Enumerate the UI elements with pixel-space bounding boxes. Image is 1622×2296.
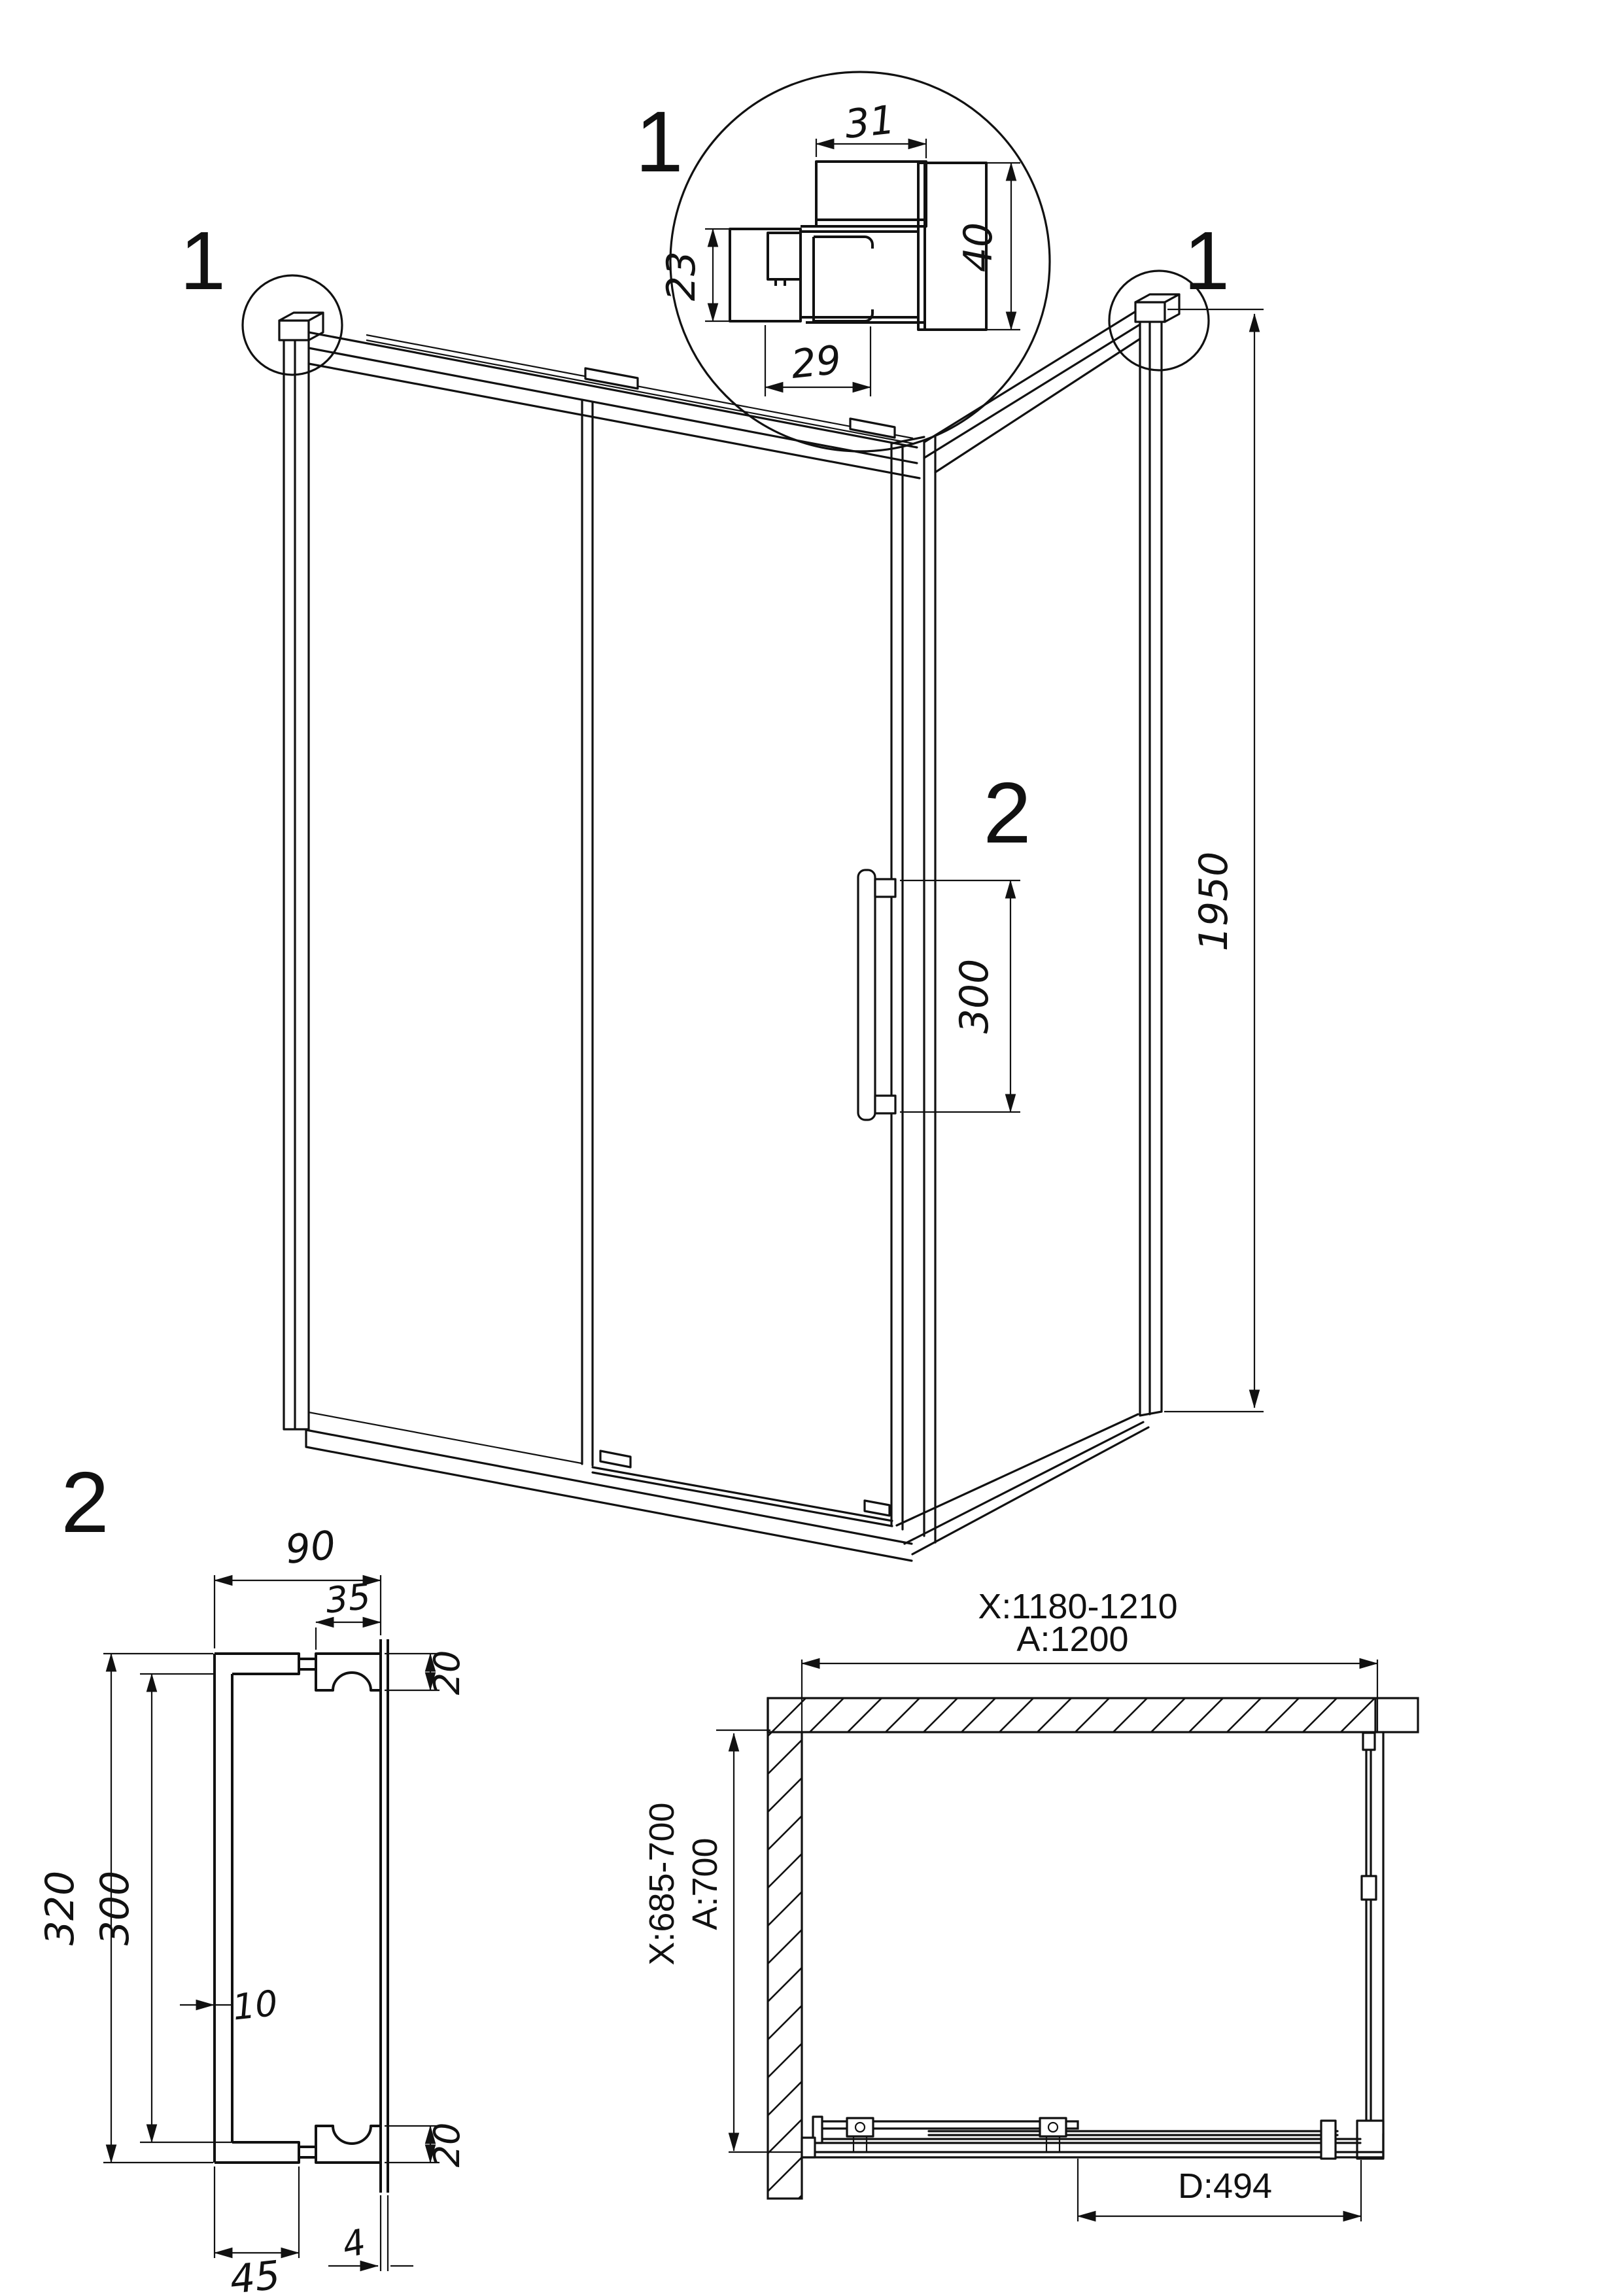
dim-300-iso: 300 xyxy=(952,959,997,1034)
roller-carriage-2 xyxy=(1040,2118,1066,2152)
handle-detail-view: 2 90 35 20 320 300 10 20 xyxy=(37,1454,468,2296)
dim-20-top: 20 xyxy=(426,1650,468,1696)
dim-300-handle: 300 xyxy=(92,1871,138,1946)
dim-31: 31 xyxy=(842,97,897,148)
plan-view: X:1180-1210 A:1200 X:685-700 A:700 xyxy=(642,1587,1418,2221)
dim-4: 4 xyxy=(339,2221,370,2267)
door-handle xyxy=(858,870,875,1120)
detail-1-label: 1 xyxy=(635,94,683,190)
handle-mount-bottom xyxy=(875,1096,895,1113)
dim-width: A:1200 xyxy=(1016,1620,1128,1659)
dim-door-opening: D:494 xyxy=(1178,2166,1272,2206)
dim-320: 320 xyxy=(37,1871,83,1946)
dim-10: 10 xyxy=(231,1983,280,2028)
wall-jamb-plan xyxy=(802,2138,815,2157)
dim-40: 40 xyxy=(956,222,1001,272)
profile-section xyxy=(730,162,986,330)
glass-bracket-top xyxy=(1363,1733,1375,1750)
wall-left-hatch xyxy=(768,1732,802,2199)
dim-1950: 1950 xyxy=(1191,852,1237,952)
dim-20-bottom: 20 xyxy=(426,2123,468,2168)
detail-1-view: 1 31 40 23 29 xyxy=(635,72,1050,451)
detail-2-label: 2 xyxy=(61,1454,109,1550)
roller-carriage-1 xyxy=(847,2118,873,2152)
dim-23: 23 xyxy=(659,251,704,301)
dim-depth: A:700 xyxy=(685,1837,725,1930)
callout-left-label: 1 xyxy=(180,215,226,307)
dim-45: 45 xyxy=(228,2252,282,2296)
dim-depth-range: X:685-700 xyxy=(642,1802,682,1965)
callout-right-label: 1 xyxy=(1184,215,1230,307)
wall-top-hatch xyxy=(768,1698,1375,1732)
handle-mount-top xyxy=(875,879,895,897)
dim-90: 90 xyxy=(283,1522,337,1573)
isometric-view: 1 1 2 300 xyxy=(180,215,1264,1561)
handle-callout-label: 2 xyxy=(983,765,1031,861)
technical-drawing-page: 1 31 40 23 29 xyxy=(0,0,1622,2296)
dim-29: 29 xyxy=(789,337,843,388)
door-end-profile xyxy=(1321,2121,1336,2159)
dim-35: 35 xyxy=(324,1576,373,1622)
glass-bracket-mid xyxy=(1362,1876,1376,1900)
drawing-canvas: 1 31 40 23 29 xyxy=(0,0,1622,2296)
